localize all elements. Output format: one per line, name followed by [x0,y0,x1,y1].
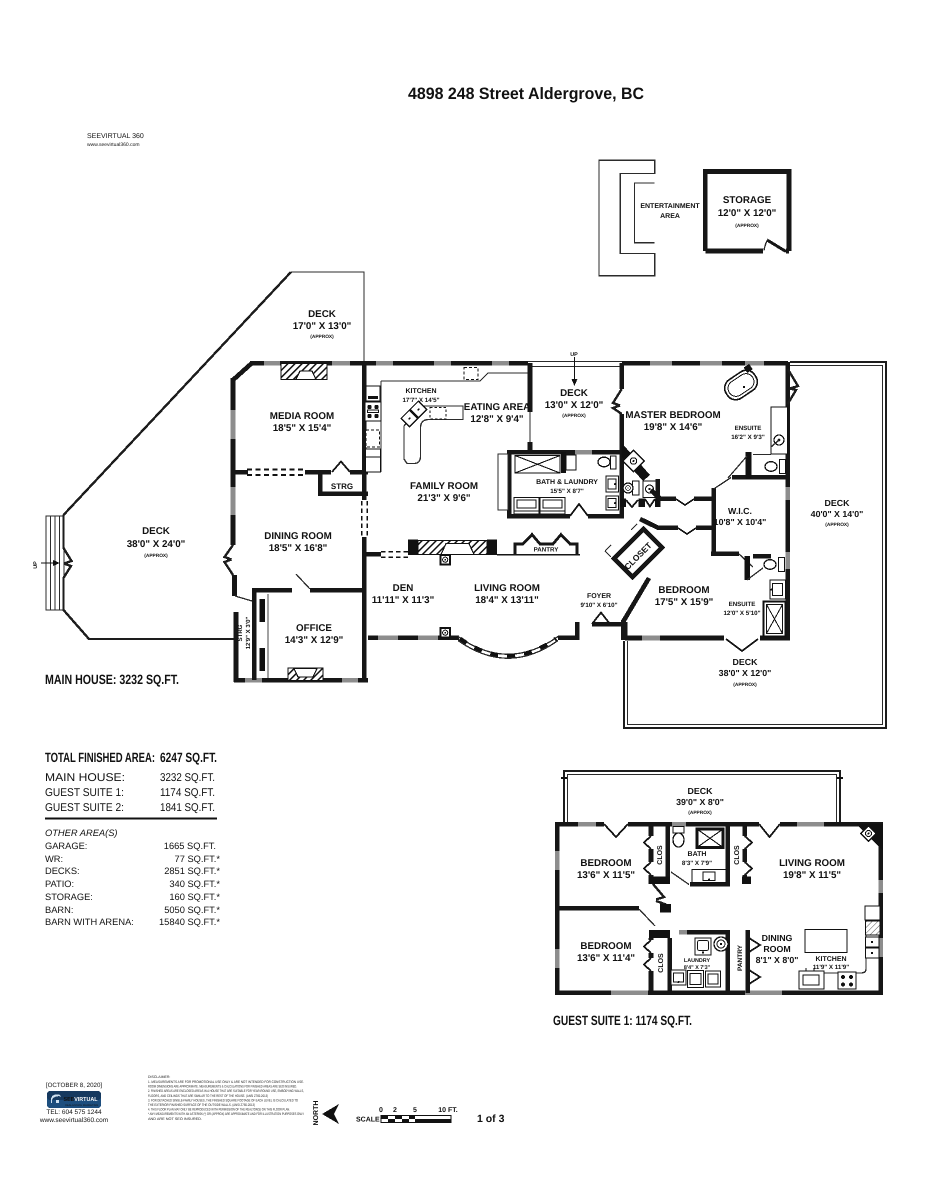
svg-text:SEEVIRTUAL: SEEVIRTUAL [64,1096,98,1103]
svg-text:GUEST SUITE 1:: GUEST SUITE 1: [45,787,124,799]
svg-text:9'10" X 6'10": 9'10" X 6'10" [580,602,617,609]
svg-text:DINING ROOM: DINING ROOM [264,531,332,542]
svg-text:GARAGE:: GARAGE: [45,841,87,851]
svg-text:1. MEASUREMENTS ARE FOR PROMOT: 1. MEASUREMENTS ARE FOR PROMOTIONAL USE … [148,1080,304,1084]
svg-text:CLOS: CLOS [734,845,741,865]
svg-text:ROOM: ROOM [763,944,790,954]
svg-text:DECK: DECK [733,657,759,667]
svg-text:3. FOR DETACHED SINGLE-FAMILY: 3. FOR DETACHED SINGLE-FAMILY HOUSES, TH… [148,1098,298,1102]
svg-text:12'8" X 9'4": 12'8" X 9'4" [470,414,523,425]
svg-text:DECK: DECK [825,498,851,508]
svg-text:14'3" X 12'9": 14'3" X 12'9" [285,635,344,646]
svg-text:(APPROX): (APPROX) [562,413,586,419]
svg-text:MASTER BEDROOM: MASTER BEDROOM [625,410,720,421]
svg-text:19'8" X 14'6": 19'8" X 14'6" [644,422,703,433]
svg-text:39'0" X 8'0": 39'0" X 8'0" [676,797,724,807]
svg-text:BATH & LAUNDRY: BATH & LAUNDRY [536,479,598,486]
svg-text:LIVING ROOM: LIVING ROOM [474,583,540,594]
svg-text:8'1" X 8'0": 8'1" X 8'0" [756,955,799,965]
svg-text:5: 5 [413,1107,417,1114]
svg-text:(APPROX): (APPROX) [733,682,757,688]
svg-text:DISCLAIMER:: DISCLAIMER: [148,1075,170,1079]
svg-text:PATIO:: PATIO: [45,879,74,889]
svg-text:15840 SQ.FT.*: 15840 SQ.FT.* [159,917,220,927]
svg-text:17'5" X 15'9": 17'5" X 15'9" [655,597,714,608]
svg-text:AND ARE NOT SEO INSURED.: AND ARE NOT SEO INSURED. [148,1117,202,1121]
svg-text:SEEVIRTUAL 360: SEEVIRTUAL 360 [87,133,144,140]
svg-text:13'0" X 12'0": 13'0" X 12'0" [545,400,604,411]
svg-text:REAL ESTATE MARKETING: REAL ESTATE MARKETING [65,1104,98,1107]
svg-text:www.seevirtual360.com: www.seevirtual360.com [39,1117,108,1124]
svg-text:(APPROX): (APPROX) [735,223,759,229]
svg-text:BEDROOM: BEDROOM [580,858,631,869]
svg-text:17'0" X 13'0": 17'0" X 13'0" [293,321,352,332]
svg-text:1841 SQ.FT.: 1841 SQ.FT. [160,802,215,814]
svg-text:ENTERTAINMENT: ENTERTAINMENT [640,203,700,210]
svg-text:KITCHEN: KITCHEN [405,388,436,395]
svg-text:STRG: STRG [237,624,244,641]
svg-text:DECK: DECK [142,526,170,537]
svg-text:FAMILY ROOM: FAMILY ROOM [410,481,478,492]
svg-text:21'3" X 9'6": 21'3" X 9'6" [417,493,470,504]
svg-text:BEDROOM: BEDROOM [580,941,631,952]
svg-text:13'6" X 11'4": 13'6" X 11'4" [577,953,635,964]
svg-text:2851 SQ.FT.*: 2851 SQ.FT.* [164,866,220,876]
svg-text:10'8" X 10'4": 10'8" X 10'4" [714,517,767,527]
svg-text:13'6" X 11'5": 13'6" X 11'5" [577,870,635,881]
svg-text:160 SQ.FT.*: 160 SQ.FT.* [169,892,220,902]
svg-text:* ANY MEASUREMENTS WITH AN AST: * ANY MEASUREMENTS WITH AN ASTERISK (*) … [148,1112,304,1116]
svg-text:38'0" X 24'0": 38'0" X 24'0" [127,539,186,550]
svg-text:EATING AREA: EATING AREA [464,402,530,413]
svg-text:DECKS:: DECKS: [45,866,80,876]
svg-text:0: 0 [379,1107,383,1114]
svg-text:77 SQ.FT.*: 77 SQ.FT.* [175,854,221,864]
svg-text:DINING: DINING [762,933,793,943]
svg-text:12'0" X 5'10": 12'0" X 5'10" [723,610,760,617]
svg-text:8'3" X 7'9": 8'3" X 7'9" [682,860,712,867]
svg-text:MEDIA ROOM: MEDIA ROOM [270,411,334,422]
svg-text:THE EXTERIOR FINISHED SURFACE: THE EXTERIOR FINISHED SURFACE OF THE OUT… [148,1103,255,1107]
svg-text:STRG: STRG [331,482,353,491]
svg-text:6247 SQ.FT.: 6247 SQ.FT. [160,750,217,765]
svg-text:5050 SQ.FT.*: 5050 SQ.FT.* [164,905,220,915]
svg-text:16'2" X 9'3": 16'2" X 9'3" [731,434,765,441]
svg-text:2: 2 [393,1107,397,1114]
svg-text:BATH: BATH [688,851,707,858]
svg-text:17'7" X 14'5": 17'7" X 14'5" [402,397,439,404]
svg-text:GUEST SUITE 1: 1174 SQ.FT.: GUEST SUITE 1: 1174 SQ.FT. [553,1013,692,1028]
svg-text:STORAGE: STORAGE [723,195,772,206]
svg-text:BARN WITH ARENA:: BARN WITH ARENA: [45,917,134,927]
svg-text:1174 SQ.FT.: 1174 SQ.FT. [160,787,215,799]
svg-text:19'8" X 11'5": 19'8" X 11'5" [783,870,841,881]
svg-text:KITCHEN: KITCHEN [815,956,846,963]
svg-text:ENSUITE: ENSUITE [729,601,756,608]
svg-text:PANTRY: PANTRY [737,944,744,971]
svg-text:1 of 3: 1 of 3 [477,1113,505,1125]
svg-text:3232 SQ.FT.: 3232 SQ.FT. [160,772,215,784]
svg-text:LIVING ROOM: LIVING ROOM [779,858,845,869]
svg-text:12'9" X 3'0": 12'9" X 3'0" [245,617,252,650]
svg-text:www.seevirtual360.com: www.seevirtual360.com [87,142,140,148]
svg-text:GUEST SUITE 2:: GUEST SUITE 2: [45,802,124,814]
svg-text:(APPROX): (APPROX) [310,334,334,340]
svg-text:BARN:: BARN: [45,905,73,915]
svg-text:UP: UP [33,561,39,569]
svg-text:OTHER AREA(S): OTHER AREA(S) [45,828,118,838]
svg-text:[OCTOBER 8, 2020]: [OCTOBER 8, 2020] [46,1082,103,1089]
svg-text:DECK: DECK [308,309,336,320]
svg-text:11'9" X 11'9": 11'9" X 11'9" [813,964,849,971]
svg-text:AREA: AREA [660,213,680,220]
svg-text:TOTAL FINISHED AREA:: TOTAL FINISHED AREA: [45,750,155,765]
svg-text:12'0" X 12'0": 12'0" X 12'0" [718,208,777,219]
svg-text:40'0" X 14'0": 40'0" X 14'0" [811,509,864,519]
svg-text:CLOS: CLOS [657,845,664,865]
svg-text:OFFICE: OFFICE [296,623,332,634]
svg-text:TEL: 604 575 1244: TEL: 604 575 1244 [46,1109,102,1116]
svg-text:2. FINISHED AREAS ARE ENCLOSED: 2. FINISHED AREAS ARE ENCLOSED AREAS IN … [148,1089,304,1093]
svg-text:W.I.C.: W.I.C. [728,506,752,516]
svg-text:LAUNDRY: LAUNDRY [684,958,711,964]
svg-text:10 FT.: 10 FT. [438,1107,458,1114]
svg-text:ENSUITE: ENSUITE [735,425,762,432]
svg-text:ROOM DIMENSIONS ARE APPROXIMAT: ROOM DIMENSIONS ARE APPROXIMATE. MEASURE… [148,1085,297,1089]
svg-text:DECK: DECK [688,786,714,796]
svg-text:18'4" X 13'11": 18'4" X 13'11" [475,595,539,606]
svg-text:1665 SQ.FT.: 1665 SQ.FT. [164,841,216,851]
svg-text:FLOORS, AND CEILINGS THAT ARE: FLOORS, AND CEILINGS THAT ARE SIMILAR TO… [148,1094,268,1098]
svg-text:MAIN HOUSE:: MAIN HOUSE: [45,772,125,784]
svg-text:18'5" X 15'4": 18'5" X 15'4" [273,423,332,434]
svg-text:15'5" X 8'7": 15'5" X 8'7" [550,488,584,495]
svg-text:NORTH: NORTH [313,1101,320,1126]
svg-text:8'4" X 7'3": 8'4" X 7'3" [684,965,711,971]
svg-text:11'11" X 11'3": 11'11" X 11'3" [372,595,434,606]
svg-text:PANTRY: PANTRY [534,547,560,554]
svg-text:4. THIS FLOOR PLAN MAY ONLY BE: 4. THIS FLOOR PLAN MAY ONLY BE REPRODUCE… [148,1108,290,1112]
svg-text:DECK: DECK [560,388,588,399]
svg-text:38'0" X 12'0": 38'0" X 12'0" [719,668,772,678]
svg-text:SCALE:: SCALE: [356,1117,382,1124]
svg-text:MAIN HOUSE: 3232 SQ.FT.: MAIN HOUSE: 3232 SQ.FT. [45,672,179,687]
svg-text:WR:: WR: [45,854,63,864]
svg-text:DEN: DEN [393,583,414,594]
svg-text:BEDROOM: BEDROOM [658,585,709,596]
svg-text:4898 248 Street Aldergrove, BC: 4898 248 Street Aldergrove, BC [408,85,644,103]
svg-text:CLOS: CLOS [658,953,665,973]
svg-text:18'5" X 16'8": 18'5" X 16'8" [269,543,328,554]
svg-text:FOYER: FOYER [587,593,611,600]
svg-text:(APPROX): (APPROX) [688,810,712,816]
svg-text:340 SQ.FT.*: 340 SQ.FT.* [169,879,220,889]
svg-text:(APPROX): (APPROX) [144,553,168,559]
svg-text:STORAGE:: STORAGE: [45,892,93,902]
svg-text:(APPROX): (APPROX) [825,522,849,528]
